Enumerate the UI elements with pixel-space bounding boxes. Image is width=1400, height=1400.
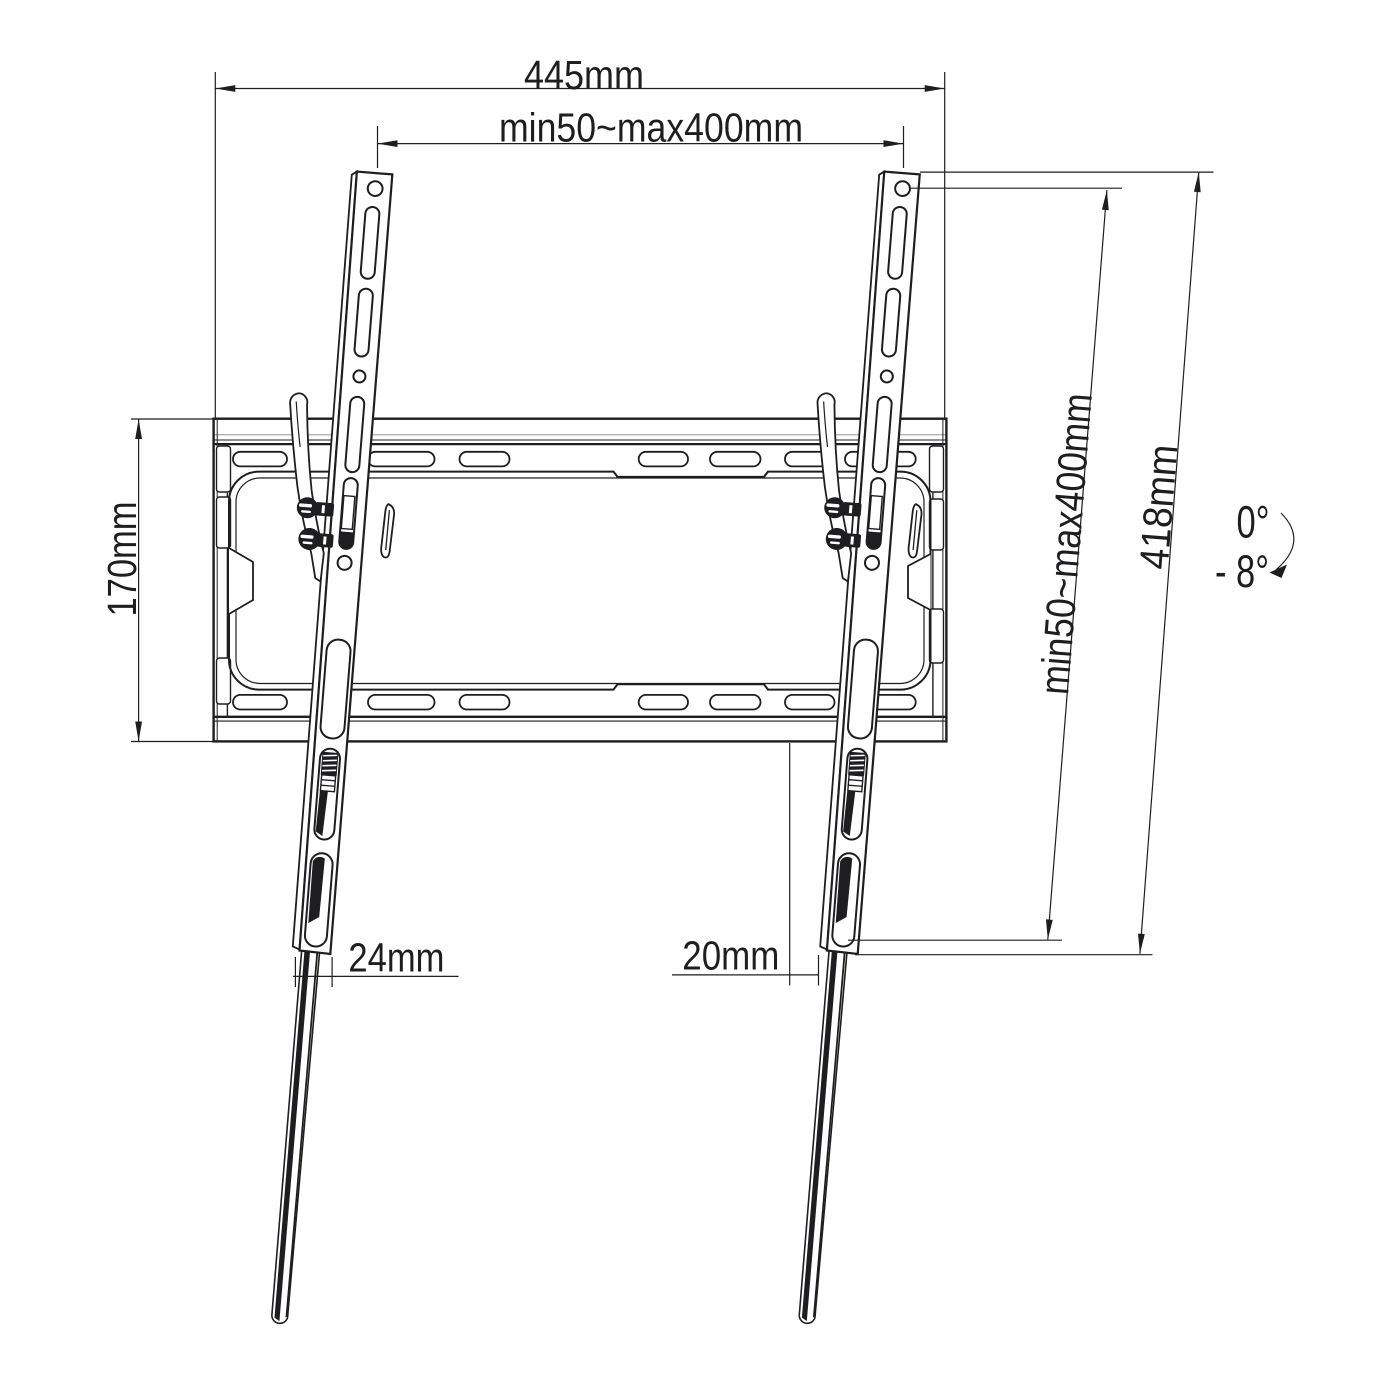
svg-text:24mm: 24mm: [348, 935, 444, 981]
svg-text:418mm: 418mm: [1131, 443, 1187, 571]
svg-text:445mm: 445mm: [524, 52, 644, 98]
svg-text:min50~max400mm: min50~max400mm: [499, 105, 803, 151]
svg-text:- 8°: - 8°: [1215, 546, 1269, 597]
svg-text:20mm: 20mm: [682, 933, 779, 979]
svg-text:0°: 0°: [1237, 497, 1270, 548]
svg-text:170mm: 170mm: [99, 502, 145, 617]
